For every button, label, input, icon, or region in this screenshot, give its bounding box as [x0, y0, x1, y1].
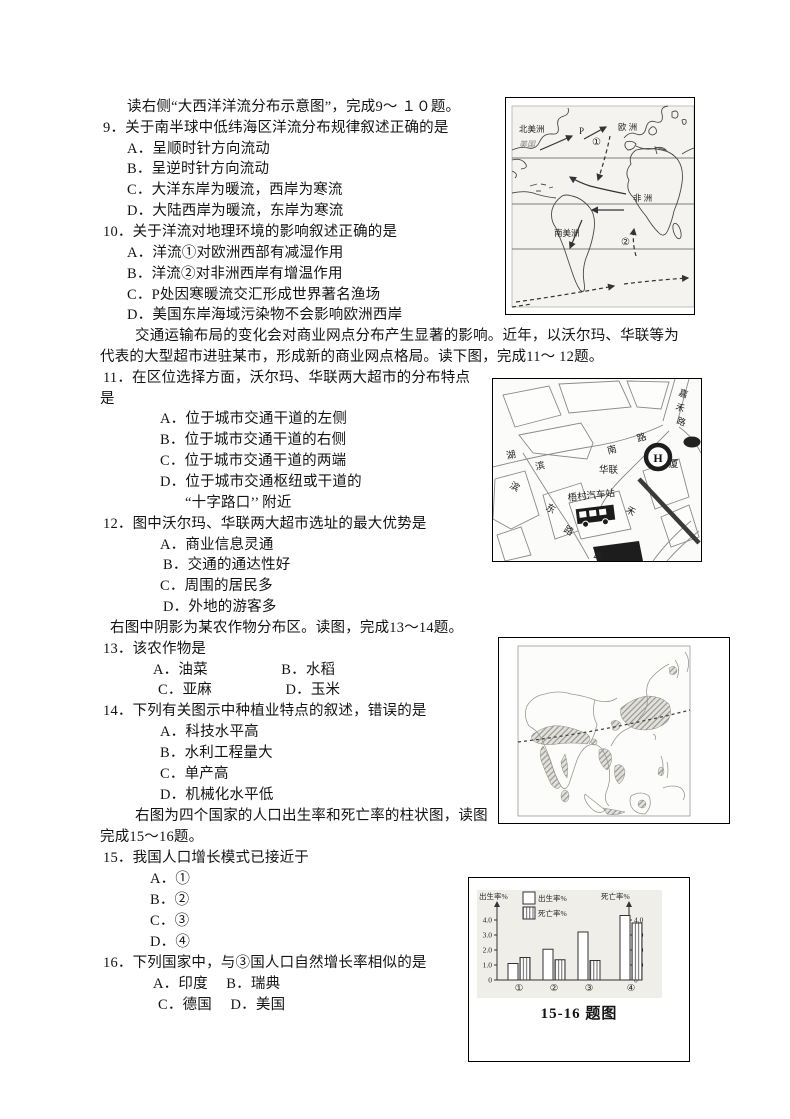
option-15b: B．②: [150, 892, 189, 909]
option-9c: C．大洋东岸为暖流，西岸为寒流: [127, 182, 343, 199]
hualian-store-logo: H: [646, 445, 670, 469]
map-label-p: P: [579, 126, 584, 136]
option-11b: B．位于城市交通干道的右侧: [160, 432, 346, 449]
map-label-africa: 非 洲: [633, 193, 652, 203]
text-line: 完成15～16题。: [100, 829, 203, 846]
figure-city-road-map: H 湖 滨 南 路 滨 东 路 路 华联 厦: [492, 378, 702, 562]
option-15d: D．④: [150, 934, 190, 951]
store-label-hualian: 华联: [599, 464, 619, 476]
chart-text: 出生率%: [479, 891, 508, 901]
option-9d: D．大陆西岸为暖流，东岸为寒流: [127, 203, 343, 220]
chart-text: 4.0: [483, 916, 493, 925]
map-label-south-america: 南美洲: [554, 228, 580, 238]
text-line: 读右侧“大西洋洋流分布示意图”，完成9～ １０题。: [127, 99, 460, 116]
city-map-svg: H 湖 滨 南 路 滨 东 路 路 华联 厦: [493, 379, 701, 561]
option-12b: B．交通的通达性好: [163, 557, 290, 574]
birth-death-chart-svg: 001.01.02.02.03.03.04.04.0①②③④出生率%死亡率%出生…: [477, 890, 662, 998]
option-14a: A．科技水平高: [160, 724, 259, 741]
text-line: 右图为四个国家的人口出生率和死亡率的柱状图，读图: [135, 808, 488, 825]
text-line: 代表的大型超市进驻某市，形成新的商业网点格局。读下图，完成11～ 12题。: [100, 349, 603, 366]
question-9: 9．关于南半球中低纬海区洋流分布规律叙述正确的是: [103, 120, 449, 137]
option-14c: C．单产高: [160, 766, 229, 783]
question-15: 15．我国人口增长模式已接近于: [103, 850, 309, 867]
map-label-current1: ①: [592, 137, 601, 148]
text-line: 交通运输布局的变化会对商业网点分布产生显著的影响。近年，以沃尔玛、华联等为: [135, 328, 679, 345]
asia-map-svg: [499, 638, 729, 823]
option-10b: B．洋流②对非洲西岸有增温作用: [127, 266, 343, 283]
chart-text: 2.0: [483, 946, 493, 955]
scan-area: [512, 106, 694, 307]
exam-page: 读右侧“大西洋洋流分布示意图”，完成9～ １０题。 9．关于南半球中低纬海区洋流…: [0, 0, 790, 1119]
options-13ab: A．油菜 B．水稻: [153, 662, 335, 679]
option-10a: A．洋流①对欧洲西部有减湿作用: [127, 245, 343, 262]
option-15c: C．③: [150, 913, 189, 930]
figure-birth-death-chart: 001.01.02.02.03.03.04.04.0①②③④出生率%死亡率%出生…: [468, 877, 690, 1062]
option-12d: D．外地的游客多: [163, 599, 277, 616]
map-label-usa: 美国: [519, 140, 536, 149]
chart-text: 0: [488, 976, 492, 985]
map-label-north-america: 北美洲: [519, 124, 545, 134]
options-13cd: C．亚麻 D．玉米: [158, 682, 340, 699]
chart-scan-panel: 001.01.02.02.03.03.04.04.0①②③④出生率%死亡率%出生…: [477, 890, 662, 998]
option-10d: D．美国东岸海域污染物不会影响欧洲西岸: [127, 307, 402, 324]
options-16ab: A．印度 B．瑞典: [153, 976, 280, 993]
chart-text: 1.0: [483, 961, 493, 970]
hualian-h-letter: H: [653, 451, 663, 465]
question-11: 11．在区位选择方面，沃尔玛、华联两大超市的分布特点: [103, 370, 470, 387]
roundabout-marker: [684, 437, 701, 448]
option-11c: C．位于城市交通干道的两端: [160, 453, 346, 470]
question-10: 10．关于洋流对地理环境的影响叙述正确的是: [103, 224, 397, 241]
option-14d: D．机械化水平低: [160, 787, 274, 804]
options-16cd: C．德国 D．美国: [158, 997, 285, 1014]
option-9a: A．呈顺时针方向流动: [127, 141, 270, 158]
option-12a: A．商业信息灵通: [160, 537, 274, 554]
question-14: 14．下列有关图示中种植业特点的叙述，错误的是: [103, 703, 427, 720]
chart-text: 出生率%: [538, 893, 567, 903]
atlantic-map-svg: 北美洲 美国 P ① 欧 洲 非 洲 南美洲 ②: [506, 98, 694, 314]
chart-text: ④: [627, 983, 636, 994]
chart-text: ①: [515, 983, 524, 994]
text-line: 右图中阴影为某农作物分布区。读图，完成13～14题。: [110, 620, 463, 637]
option-11a: A．位于城市交通干道的左侧: [160, 411, 347, 428]
chart-text: ③: [585, 983, 594, 994]
figure-crop-distribution-map: [498, 637, 730, 824]
chart-text: 死亡率%: [601, 891, 630, 901]
question-16: 16．下列国家中，与③国人口自然增长率相似的是: [103, 955, 427, 972]
chart-text: ②: [550, 983, 559, 994]
option-10c: C．P处因寒暖流交汇形成世界著名渔场: [127, 287, 380, 304]
text-line: 是: [100, 391, 115, 408]
question-12: 12．图中沃尔玛、华联两大超市选址的最大优势是: [103, 516, 427, 533]
map-label-europe: 欧 洲: [618, 122, 637, 132]
question-13: 13．该农作物是: [103, 641, 206, 658]
chart-text: 3.0: [483, 931, 493, 940]
road-label-xia: 厦: [669, 459, 679, 470]
figure-caption: 15-16 题图: [469, 1002, 689, 1023]
option-9b: B．呈逆时针方向流动: [127, 161, 269, 178]
option-11d: D．位于城市交通枢纽或干道的: [160, 474, 362, 491]
chart-text: 死亡率%: [538, 908, 567, 918]
option-14b: B．水利工程量大: [160, 745, 273, 762]
option-11d-cont: “十字路口’’ 附近: [185, 495, 292, 512]
option-12c: C．周围的居民多: [160, 578, 273, 595]
map-label-current2: ②: [621, 237, 630, 248]
figure-atlantic-currents-map: 北美洲 美国 P ① 欧 洲 非 洲 南美洲 ②: [505, 97, 695, 315]
option-15a: A．①: [150, 871, 190, 888]
